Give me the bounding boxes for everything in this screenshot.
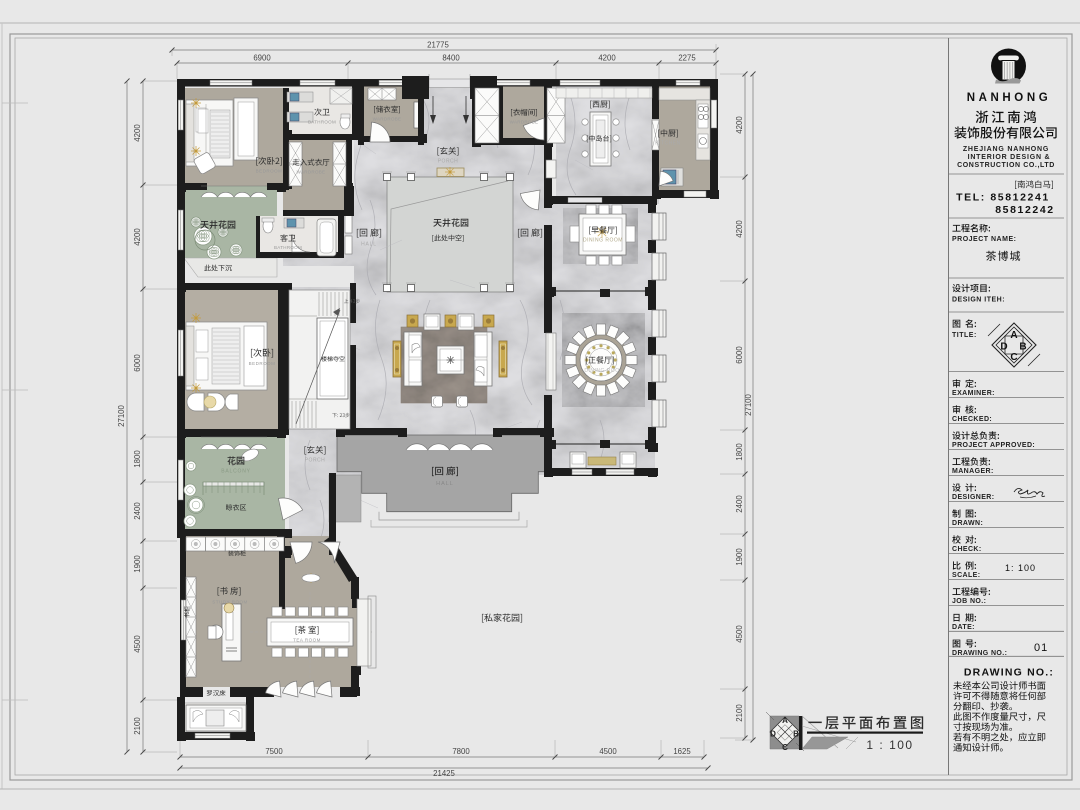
svg-text:2400: 2400 (133, 502, 142, 520)
svg-text:BALCONY: BALCONY (221, 469, 251, 475)
svg-text:TEA ROOM: TEA ROOM (293, 638, 321, 643)
svg-text:4500: 4500 (133, 635, 142, 653)
svg-text:WARDROBE: WARDROBE (297, 170, 326, 175)
svg-text:INTERIOR DESIGN &: INTERIOR DESIGN & (968, 154, 1051, 161)
svg-text:21425: 21425 (433, 769, 455, 778)
svg-text:ZHEJIANG NANHONG: ZHEJIANG NANHONG (963, 146, 1049, 153)
svg-text:TEL: 85812241: TEL: 85812241 (956, 192, 1050, 204)
svg-text:1625: 1625 (673, 747, 691, 756)
svg-text:7800: 7800 (452, 747, 470, 756)
svg-text:KITCHEN: KITCHEN (655, 141, 680, 147)
svg-text:BATHROOM: BATHROOM (274, 245, 302, 250)
svg-text:NANHONG: NANHONG (967, 92, 1052, 104)
svg-text:1900: 1900 (735, 548, 744, 566)
svg-text:7500: 7500 (265, 747, 283, 756)
svg-text:DESIGN ITEH:: DESIGN ITEH: (952, 297, 1005, 304)
svg-text:D: D (770, 730, 776, 739)
svg-text:TITLE:: TITLE: (952, 332, 977, 339)
svg-text:HALL: HALL (361, 242, 377, 248)
svg-text:B: B (1019, 342, 1026, 353)
svg-text:DINING ROO: DINING ROO (584, 368, 619, 374)
svg-text:4500: 4500 (735, 625, 744, 643)
svg-text:27100: 27100 (117, 404, 126, 426)
svg-text:PORCH: PORCH (438, 159, 459, 165)
svg-text:D: D (1000, 342, 1007, 353)
svg-text:EXAMINER:: EXAMINER: (952, 390, 995, 397)
svg-text:2275: 2275 (678, 54, 696, 63)
svg-text:HALL: HALL (436, 481, 454, 487)
svg-text:21775: 21775 (427, 41, 449, 50)
svg-text:DRAWING NO.:: DRAWING NO.: (964, 667, 1054, 679)
svg-text:DRAWING NO.:: DRAWING NO.: (952, 650, 1007, 657)
svg-text:MANAGER:: MANAGER: (952, 468, 994, 475)
svg-text:DATE:: DATE: (952, 624, 975, 631)
svg-text:2400: 2400 (735, 495, 744, 513)
svg-text:4200: 4200 (133, 228, 142, 246)
svg-text:A: A (1010, 330, 1017, 341)
svg-text:PROJECT APPROVED:: PROJECT APPROVED: (952, 442, 1035, 449)
svg-text:6000: 6000 (133, 354, 142, 372)
svg-text:85812242: 85812242 (995, 204, 1055, 216)
svg-text:1 : 100: 1 : 100 (866, 738, 913, 752)
svg-text:SCALE:: SCALE: (952, 572, 980, 579)
svg-text:CHECKED:: CHECKED: (952, 416, 992, 423)
svg-text:DESIGNER:: DESIGNER: (952, 494, 995, 501)
svg-text:1: 100: 1: 100 (1005, 563, 1036, 573)
svg-text:BEDROOM: BEDROOM (249, 361, 276, 366)
svg-text:4500: 4500 (599, 747, 617, 756)
svg-text:PROJECT NAME:: PROJECT NAME: (952, 236, 1016, 243)
svg-text:6900: 6900 (253, 54, 271, 63)
svg-text:4200: 4200 (598, 54, 616, 63)
svg-text:BEDROOM: BEDROOM (256, 169, 283, 174)
svg-text:6000: 6000 (735, 346, 744, 364)
svg-text:DINING ROOM: DINING ROOM (583, 238, 623, 244)
svg-text:4200: 4200 (735, 220, 744, 238)
svg-text:C: C (782, 743, 788, 752)
svg-text:WARDROBE: WARDROBE (510, 120, 539, 125)
svg-text:4200: 4200 (133, 124, 142, 142)
svg-text:BATHROOM: BATHROOM (308, 120, 336, 125)
svg-text:PORCH: PORCH (305, 458, 326, 464)
svg-text:C: C (1010, 352, 1017, 363)
svg-text:2100: 2100 (133, 717, 142, 735)
svg-text:STUDY ROOM: STUDY ROOM (212, 600, 247, 605)
svg-text:1900: 1900 (133, 555, 142, 573)
svg-text:8400: 8400 (442, 54, 460, 63)
svg-text:CHECK:: CHECK: (952, 546, 982, 553)
svg-text:WARDROBE: WARDROBE (373, 117, 402, 122)
svg-text:CONSTRUCTION CO.,LTD: CONSTRUCTION CO.,LTD (957, 162, 1055, 169)
svg-text:B: B (793, 730, 799, 739)
svg-text:DRAWN:: DRAWN: (952, 520, 983, 527)
svg-text:4200: 4200 (735, 116, 744, 134)
svg-text:01: 01 (1034, 642, 1048, 654)
svg-text:A: A (782, 716, 788, 725)
svg-text:2100: 2100 (735, 704, 744, 722)
svg-text:JOB NO.:: JOB NO.: (952, 598, 986, 605)
svg-text:1800: 1800 (735, 443, 744, 461)
svg-text:1800: 1800 (133, 450, 142, 468)
